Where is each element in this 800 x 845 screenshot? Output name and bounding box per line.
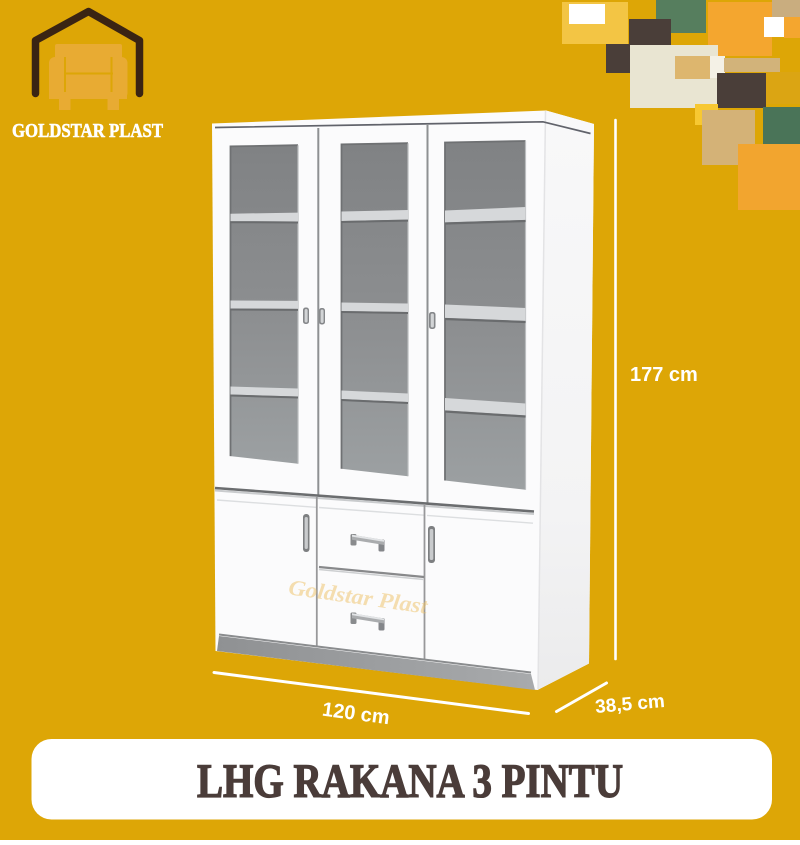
svg-text:LHG RAKANA 3 PINTU: LHG RAKANA 3 PINTU [197,755,623,808]
svg-text:177 cm: 177 cm [630,364,698,386]
svg-text:GOLDSTAR PLAST: GOLDSTAR PLAST [12,120,164,142]
